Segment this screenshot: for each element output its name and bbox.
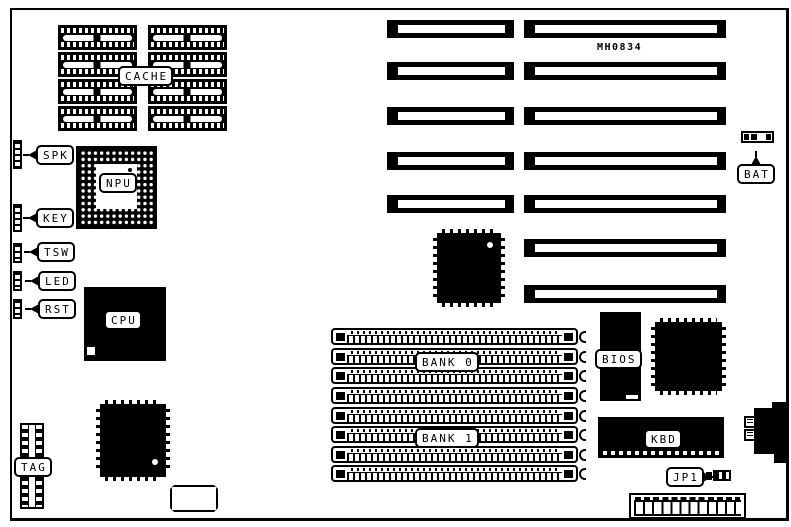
npu-label: NPU [99, 173, 137, 193]
isa-slot-8bit [387, 20, 514, 38]
isa-slot-16bit [524, 239, 726, 257]
latch [564, 470, 573, 478]
npu-socket: NPU [76, 146, 157, 229]
spk-label: SPK [36, 145, 74, 165]
simm-slot [331, 328, 578, 345]
cache-chip [148, 25, 227, 50]
keyboard-din-connector [744, 402, 790, 464]
chip-window [153, 116, 222, 122]
isa-slot-16bit [524, 20, 726, 38]
pin1-dot [152, 459, 158, 465]
latch-hook [579, 410, 586, 422]
latch-hook [579, 468, 586, 480]
pin-missing [759, 134, 764, 140]
qfp-chip [100, 404, 166, 477]
chip-window [153, 89, 222, 95]
motherboard-diagram: MH0834 CACHE SPK KEY TSW LED RST NPU CPU… [0, 0, 791, 527]
isa-slot-16bit [524, 107, 726, 125]
qfp-side-pins [100, 404, 166, 477]
latch [336, 392, 345, 400]
simm-slot [331, 446, 578, 463]
speaker-header [13, 140, 22, 169]
pin [766, 134, 771, 140]
key-label: KEY [36, 208, 74, 228]
cpu-notch [87, 347, 95, 355]
kbd-label: KBD [644, 429, 682, 449]
latch-hook [579, 449, 586, 461]
bat-label: BAT [737, 164, 775, 184]
simm-slot [331, 465, 578, 482]
connector-pin [744, 416, 756, 428]
latch [564, 392, 573, 400]
isa-slot-8bit [387, 107, 514, 125]
pin1-dot [487, 242, 493, 248]
latch [564, 372, 573, 380]
latch [564, 333, 573, 341]
isa-slot-16bit [524, 152, 726, 170]
pga-center: NPU [96, 164, 137, 209]
battery-connector [741, 131, 774, 143]
chip-window [63, 116, 132, 122]
bios-label: BIOS [595, 349, 642, 369]
latch [336, 431, 345, 439]
chip-window [63, 89, 132, 95]
tsw-label: TSW [37, 242, 75, 262]
isa-slot-8bit [387, 195, 514, 213]
connector-tail [774, 452, 789, 463]
latch-hook [579, 370, 586, 382]
latch [564, 353, 573, 361]
latch-hook [579, 390, 586, 402]
isa-slot-16bit [524, 195, 726, 213]
rst-label: RST [38, 299, 76, 319]
simm-slot [331, 387, 578, 404]
latch [336, 412, 345, 420]
isa-slot-16bit [524, 285, 726, 303]
jp1-label: JP1 [666, 467, 704, 487]
pin1-dot [128, 168, 132, 172]
bank0-label: BANK 0 [415, 352, 479, 372]
isa-slot-16bit [524, 62, 726, 80]
connector-pin [744, 429, 756, 441]
cache-chip [148, 106, 227, 131]
turbo-switch-header [13, 243, 22, 263]
chipset-qfp-chip [437, 233, 501, 303]
keylock-header [13, 204, 22, 232]
power-connector [629, 493, 746, 519]
bios-notch [626, 395, 638, 399]
cache-chip [58, 106, 137, 131]
reset-header [13, 299, 22, 319]
cache-label: CACHE [118, 66, 173, 86]
io-qfp-chip [655, 322, 722, 391]
cpu-label: CPU [104, 310, 142, 330]
latch [564, 412, 573, 420]
led-label: LED [38, 271, 76, 291]
led-header [13, 271, 22, 291]
latch [336, 372, 345, 380]
latch-hook [579, 351, 586, 363]
isa-slot-8bit [387, 62, 514, 80]
latch [564, 431, 573, 439]
crystal-oscillator [170, 485, 218, 512]
latch [336, 353, 345, 361]
bank1-label: BANK 1 [415, 428, 479, 448]
qfp-side-pins [655, 322, 722, 391]
latch-hook [579, 429, 586, 441]
simm-slot [331, 407, 578, 424]
isa-slot-8bit [387, 152, 514, 170]
pin [744, 134, 749, 140]
latch [336, 333, 345, 341]
latch [336, 470, 345, 478]
latch [336, 451, 345, 459]
tag-label: TAG [14, 457, 52, 477]
part-number-text: MH0834 [597, 42, 642, 53]
connector-body [754, 408, 788, 454]
cache-chip [58, 25, 137, 50]
chip-window [63, 35, 132, 41]
cpu-chip: CPU [84, 287, 166, 361]
pin [751, 134, 756, 140]
chip-window [153, 35, 222, 41]
latch-hook [579, 331, 586, 343]
latch [564, 451, 573, 459]
